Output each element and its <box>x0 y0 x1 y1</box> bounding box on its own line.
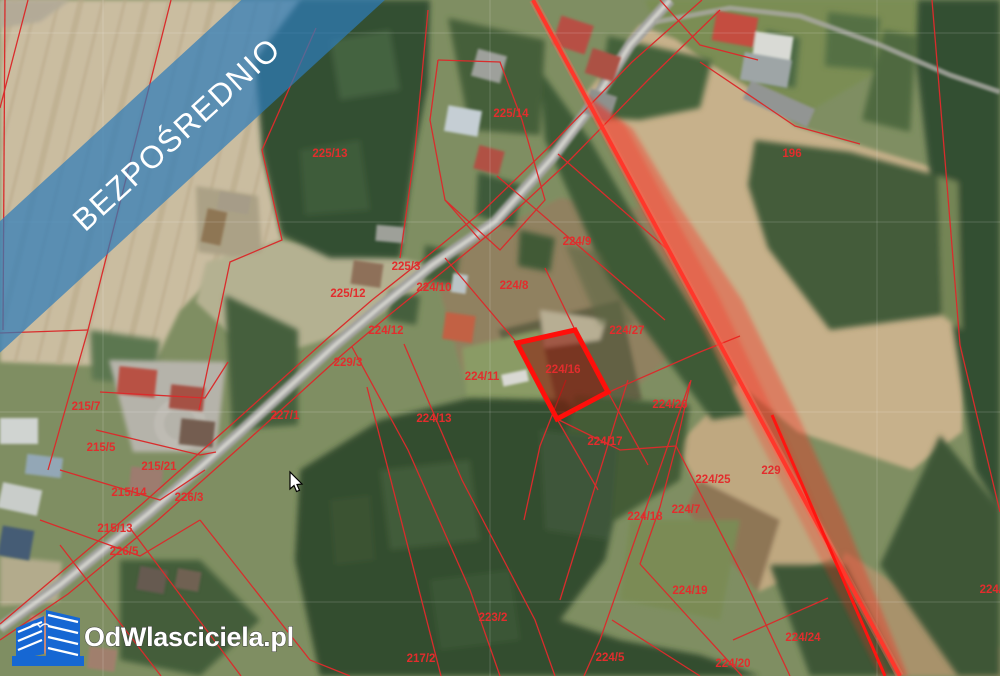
svg-text:227/1: 227/1 <box>271 410 300 422</box>
svg-text:225/3: 225/3 <box>392 261 421 273</box>
svg-text:224/18: 224/18 <box>627 511 663 523</box>
svg-text:215/5: 215/5 <box>87 442 116 454</box>
svg-text:224/17: 224/17 <box>587 436 622 448</box>
svg-text:224/27: 224/27 <box>609 325 644 337</box>
svg-text:224/16: 224/16 <box>545 364 580 376</box>
svg-text:224/19: 224/19 <box>672 585 707 597</box>
svg-text:223/2: 223/2 <box>479 612 508 624</box>
svg-text:224/5: 224/5 <box>596 652 625 664</box>
svg-text:224/26: 224/26 <box>652 399 687 411</box>
svg-text:225/13: 225/13 <box>312 148 347 160</box>
svg-text:224/20: 224/20 <box>715 658 750 670</box>
svg-text:224/24: 224/24 <box>785 632 821 644</box>
svg-text:215/21: 215/21 <box>141 461 177 473</box>
svg-text:215/7: 215/7 <box>72 401 101 413</box>
svg-text:224/25: 224/25 <box>695 474 731 486</box>
svg-text:226/3: 226/3 <box>175 492 204 504</box>
svg-text:229/3: 229/3 <box>334 357 363 369</box>
svg-text:215/13: 215/13 <box>97 523 132 535</box>
svg-text:224/13: 224/13 <box>416 413 451 425</box>
svg-text:215/14: 215/14 <box>111 487 147 499</box>
svg-text:196: 196 <box>782 148 801 160</box>
svg-text:224/10: 224/10 <box>416 282 451 294</box>
svg-text:224/1: 224/1 <box>980 584 1000 596</box>
svg-text:OdWlasciciela.pl: OdWlasciciela.pl <box>84 622 294 652</box>
svg-text:226/5: 226/5 <box>110 546 139 558</box>
svg-text:224/7: 224/7 <box>672 504 701 516</box>
svg-text:225/14: 225/14 <box>493 108 529 120</box>
svg-text:224/8: 224/8 <box>500 280 529 292</box>
svg-text:229: 229 <box>761 465 780 477</box>
svg-text:224/12: 224/12 <box>368 325 403 337</box>
svg-text:225/12: 225/12 <box>330 288 365 300</box>
svg-text:224/9: 224/9 <box>563 236 592 248</box>
svg-text:224/11: 224/11 <box>465 371 500 383</box>
svg-text:217/2: 217/2 <box>407 653 436 665</box>
